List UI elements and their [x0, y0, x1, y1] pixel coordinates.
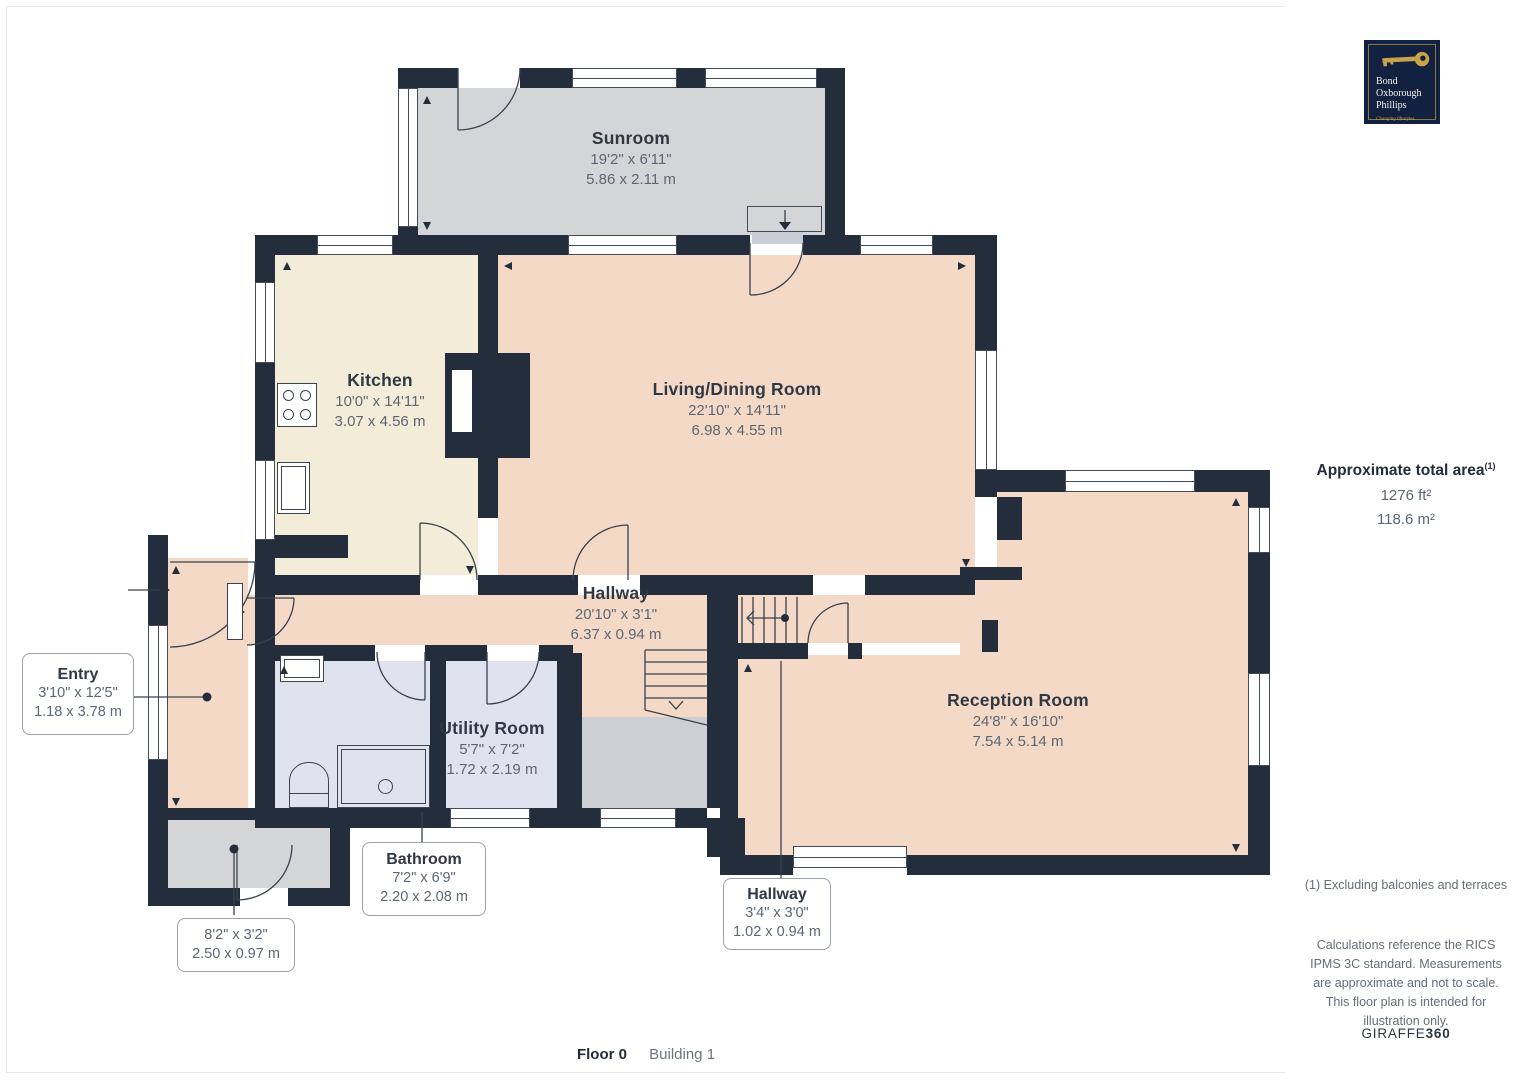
key-icon [1376, 51, 1432, 69]
room-label-utility: Utility Room 5'7" x 7'2" 1.72 x 2.19 m [439, 718, 544, 779]
window [568, 235, 677, 255]
room-name: Reception Room [947, 690, 1089, 711]
room-label-hallway: Hallway 20'10" x 3'1" 6.37 x 0.94 m [571, 583, 662, 644]
window [572, 68, 677, 88]
wall [255, 575, 420, 595]
wall [255, 255, 275, 282]
room-name: Utility Room [439, 718, 544, 739]
room-dim-metric: 2.50 x 0.97 m [178, 945, 294, 964]
wall [148, 535, 168, 560]
room-dim-imperial: 10'0" x 14'11" [335, 392, 426, 411]
floor-stair-landing [582, 717, 707, 808]
total-area-metric: 118.6 m² [1286, 511, 1526, 528]
floor-porch [168, 820, 330, 888]
building-label: Building 1 [649, 1046, 715, 1063]
room-label-reception: Reception Room 24'8" x 16'10" 7.54 x 5.1… [947, 690, 1089, 751]
window [600, 808, 676, 828]
wall [393, 235, 568, 255]
room-label-kitchen: Kitchen 10'0" x 14'11" 3.07 x 4.56 m [335, 370, 426, 431]
giraffe360-brand: GIRAFFE360 [1286, 1026, 1526, 1041]
disclaimer: Calculations reference the RICS IPMS 3C … [1308, 936, 1504, 1031]
floor-label: Floor 0 [577, 1046, 627, 1063]
room-dim-imperial: 19'2" x 6'11" [586, 150, 676, 169]
window [450, 808, 530, 828]
wall [848, 643, 862, 659]
wall [255, 363, 275, 460]
window [1248, 673, 1270, 766]
agency-logo-inner: Bond Oxborough Phillips Changing lifesty… [1368, 44, 1436, 120]
wall [425, 645, 487, 661]
window [255, 282, 275, 363]
total-area-imperial: 1276 ft² [1286, 487, 1526, 504]
floor-plan: Sunroom 19'2" x 6'11" 5.86 x 2.11 m Kitc… [0, 0, 1286, 1080]
window [1065, 470, 1195, 492]
wall [676, 808, 707, 828]
room-dim-imperial: 22'10" x 14'11" [653, 401, 822, 420]
wall [398, 68, 458, 88]
room-dim-imperial: 20'10" x 3'1" [571, 605, 662, 624]
wall [803, 235, 860, 255]
room-name: Bathroom [363, 851, 485, 869]
window [793, 846, 907, 868]
wall [478, 255, 498, 353]
agency-tagline: Changing lifestyles [1376, 117, 1429, 122]
door-step [752, 232, 803, 244]
wall [975, 470, 1065, 492]
wall [825, 88, 845, 235]
wall [997, 497, 1022, 540]
room-dim-imperial: 8'2" x 3'2" [178, 926, 294, 945]
wall [288, 888, 350, 906]
wall [557, 661, 573, 808]
floor-indicator: Floor 0 Building 1 [577, 1046, 715, 1063]
room-dim-metric: 5.86 x 2.11 m [586, 170, 676, 189]
window [705, 68, 817, 88]
wall [573, 653, 582, 808]
callout-porch: 8'2" x 3'2" 2.50 x 0.97 m [177, 918, 295, 972]
callout-entry: Entry 3'10" x 12'5" 1.18 x 3.78 m [22, 653, 134, 735]
wall [975, 255, 997, 350]
wall [865, 575, 975, 595]
room-dim-imperial: 7'2" x 6'9" [363, 869, 485, 888]
window [860, 235, 933, 255]
window [317, 235, 393, 255]
room-name: Hallway [724, 886, 830, 904]
room-dim-metric: 3.07 x 4.56 m [335, 412, 426, 431]
sink-icon [277, 462, 310, 514]
room-dim-metric: 1.72 x 2.19 m [439, 760, 544, 779]
wall-pillar [982, 620, 998, 652]
total-area-block: Approximate total area(1) 1276 ft² 118.6… [1286, 461, 1526, 528]
wall [148, 888, 240, 906]
wall [1248, 553, 1270, 673]
stove-icon [277, 383, 317, 427]
wall [933, 235, 997, 255]
wall [573, 808, 600, 828]
wall [707, 818, 745, 857]
entry-door-panel [227, 583, 243, 640]
wall [720, 855, 793, 875]
shower-icon [337, 745, 430, 808]
wall [478, 458, 498, 518]
room-dim-metric: 1.02 x 0.94 m [724, 923, 830, 942]
floor-stair-notch [738, 595, 975, 643]
wall [539, 645, 573, 661]
room-dim-metric: 6.98 x 4.55 m [653, 421, 822, 440]
chimney-recess [452, 370, 472, 432]
callout-hallway-small: Hallway 3'4" x 3'0" 1.02 x 0.94 m [723, 878, 831, 950]
wall [960, 567, 1022, 580]
wall [738, 643, 808, 659]
wall [677, 68, 705, 88]
wall [677, 235, 750, 255]
window [255, 460, 275, 540]
wall [530, 808, 573, 828]
room-label-sunroom: Sunroom 19'2" x 6'11" 5.86 x 2.11 m [586, 128, 676, 189]
footnote-marker: (1) [1484, 461, 1495, 471]
window [398, 88, 418, 227]
wall [520, 68, 572, 88]
wall [907, 855, 1270, 875]
total-area-title: Approximate total area(1) [1286, 461, 1526, 480]
floor-reception [738, 655, 1248, 855]
agency-logo: Bond Oxborough Phillips Changing lifesty… [1364, 40, 1440, 124]
room-dim-imperial: 3'4" x 3'0" [724, 904, 830, 923]
callout-bathroom: Bathroom 7'2" x 6'9" 2.20 x 2.08 m [362, 842, 486, 916]
room-name: Kitchen [335, 370, 426, 391]
room-dim-metric: 1.18 x 3.78 m [23, 703, 133, 722]
room-dim-metric: 2.20 x 2.08 m [363, 888, 485, 907]
room-dim-imperial: 24'8" x 16'10" [947, 712, 1089, 731]
wall [255, 235, 317, 255]
room-dim-metric: 7.54 x 5.14 m [947, 732, 1089, 751]
room-name: Sunroom [586, 128, 676, 149]
room-label-living: Living/Dining Room 22'10" x 14'11" 6.98 … [653, 379, 822, 440]
agency-name: Bond Oxborough Phillips [1376, 76, 1429, 113]
wall [817, 68, 845, 88]
room-name: Living/Dining Room [653, 379, 822, 400]
room-dim-imperial: 3'10" x 12'5" [23, 684, 133, 703]
wall [255, 808, 430, 828]
window [975, 350, 997, 470]
wall [148, 560, 168, 625]
window [1248, 507, 1270, 553]
room-name: Hallway [571, 583, 662, 604]
footnote: (1) Excluding balconies and terraces [1296, 878, 1516, 892]
sunroom-step [747, 206, 822, 232]
wall [478, 575, 578, 595]
bathroom-sink-icon [280, 655, 324, 682]
wall [1248, 470, 1270, 507]
room-dim-metric: 6.37 x 0.94 m [571, 625, 662, 644]
room-name: Entry [23, 666, 133, 684]
toilet-tank [289, 793, 329, 808]
wall [255, 595, 275, 808]
window [148, 625, 168, 760]
room-dim-imperial: 5'7" x 7'2" [439, 740, 544, 759]
wall [430, 808, 450, 828]
floor-reception-upper [997, 492, 1248, 659]
sidebar: Bond Oxborough Phillips Changing lifesty… [1286, 0, 1526, 1080]
